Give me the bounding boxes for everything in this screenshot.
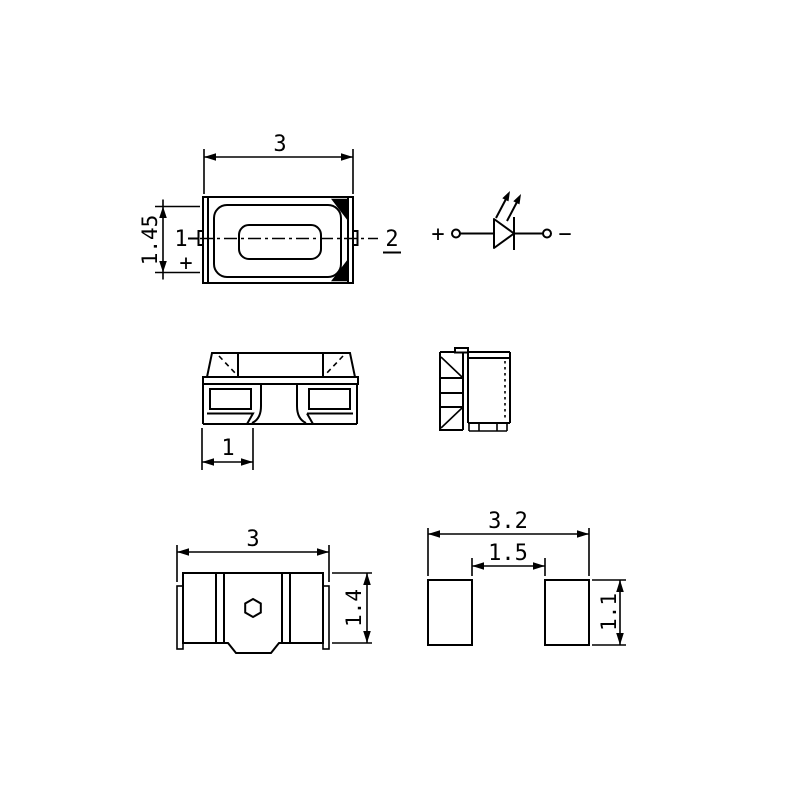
arrowhead: [317, 548, 329, 556]
bottom-body-outline: [183, 573, 323, 653]
arrowhead: [204, 153, 216, 161]
emitting-area-outline: [239, 225, 321, 259]
bottom-height-dim-label: 1.4: [342, 589, 366, 627]
end-top-tab: [455, 348, 468, 353]
terminal-fold-lines: [207, 414, 353, 425]
arrowhead: [533, 562, 545, 570]
arrowhead: [363, 573, 371, 585]
electrode-inner-edges: [208, 197, 348, 283]
cathode-mark-bottom: [331, 259, 348, 281]
terminal-width-dim-label: 1: [221, 436, 234, 461]
top-width-dim-label: 3: [273, 132, 286, 157]
center-pedestal: [252, 384, 306, 423]
technical-drawing-canvas: 3 1.45 1 + 2 + −: [0, 0, 800, 800]
arrowhead: [616, 580, 624, 592]
end-body-right: [468, 352, 510, 423]
pin1-plus-sign: +: [179, 251, 192, 276]
arrowhead: [241, 458, 253, 466]
light-emission-arrows: [496, 191, 521, 221]
front-terminal-dimension: 1: [202, 428, 253, 470]
right-terminal-gap: [309, 389, 350, 409]
diode-triangle: [494, 219, 514, 248]
arrowhead: [616, 633, 624, 645]
front-view: 1: [202, 353, 358, 470]
left-terminal-gap: [210, 389, 251, 409]
arrowhead: [577, 530, 589, 538]
arrowhead: [513, 194, 521, 204]
cathode-terminal-circle: [543, 230, 551, 238]
arrowhead: [202, 458, 214, 466]
bottom-width-dim-label: 3: [246, 527, 259, 552]
anode-terminal-circle: [452, 230, 460, 238]
flange: [203, 377, 358, 384]
end-feet: [469, 423, 507, 431]
top-height-dim-label: 1.45: [138, 215, 162, 266]
anode-plus-sign: +: [431, 222, 444, 247]
bottom-view: 3 1.4: [177, 527, 372, 653]
bottom-terminal-edges: [216, 573, 290, 643]
left-pad: [428, 580, 472, 645]
top-view: 3 1.45 1 + 2: [138, 132, 401, 283]
lens-top-outline: [207, 353, 355, 377]
pad-overall-dim-label: 3.2: [488, 509, 528, 534]
arrowhead: [363, 631, 371, 643]
arrowhead: [502, 191, 510, 201]
center-hole: [245, 599, 261, 617]
end-terminal-folds: [440, 378, 463, 407]
arrowhead: [341, 153, 353, 161]
arrowhead: [472, 562, 484, 570]
arrowhead: [428, 530, 440, 538]
pin1-label: 1: [174, 227, 187, 252]
pad-height-dimension: 1.1: [592, 580, 626, 645]
pad-gap-dimension: 1.5: [472, 541, 545, 576]
drawing-svg: 3 1.45 1 + 2 + −: [0, 0, 800, 800]
package-body-outline: [203, 197, 353, 283]
lens-dividers: [238, 353, 323, 377]
led-schematic: + −: [431, 191, 571, 250]
right-pad: [545, 580, 589, 645]
cathode-minus-sign: −: [558, 222, 571, 247]
pad-height-dim-label: 1.1: [597, 593, 621, 631]
pin2-label: 2: [385, 227, 398, 252]
arrowhead: [177, 548, 189, 556]
pad-gap-dim-label: 1.5: [488, 541, 528, 566]
bottom-height-dimension: 1.4: [332, 573, 372, 643]
top-width-dimension: 3: [204, 132, 353, 194]
pad-layout: 3.2 1.5 1.1: [428, 509, 626, 645]
cathode-mark-top: [331, 199, 348, 221]
end-view: [440, 348, 510, 431]
